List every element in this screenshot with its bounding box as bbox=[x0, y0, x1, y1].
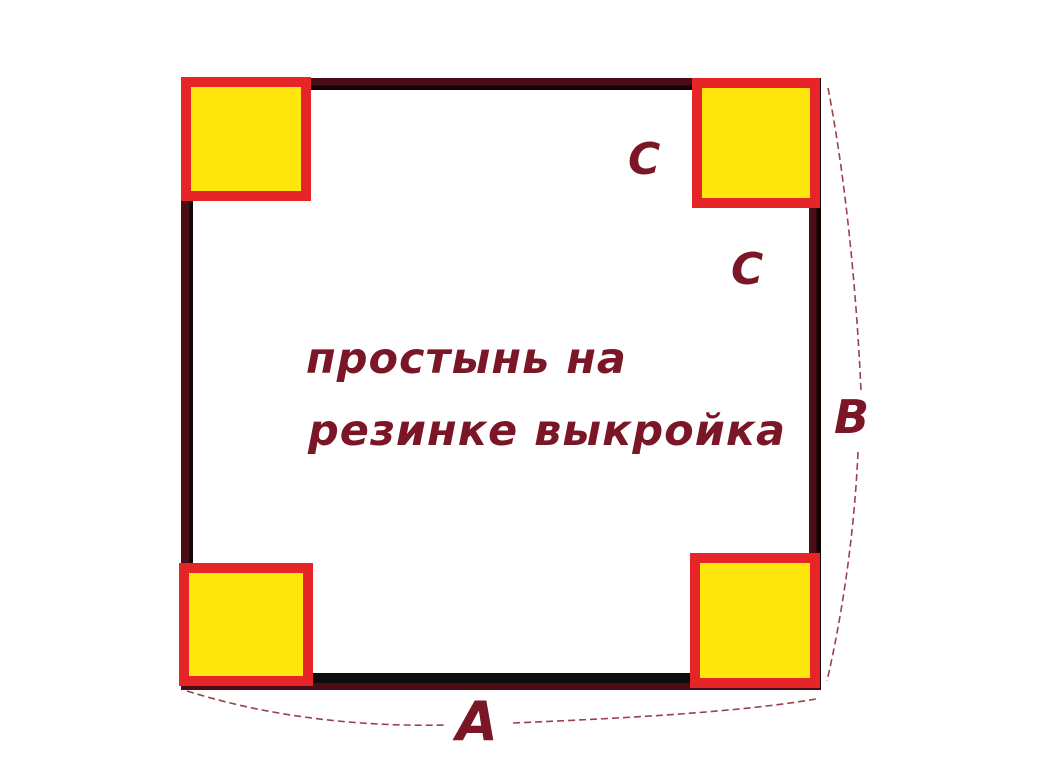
pattern-caption-line1: простынь на bbox=[306, 334, 627, 384]
dimension-label-c-lower: C bbox=[731, 244, 764, 295]
dimension-curves bbox=[0, 0, 1057, 768]
corner-square-top-right bbox=[692, 78, 820, 208]
pattern-caption-line2: резинке выкройка bbox=[308, 406, 786, 456]
corner-square-bottom-right bbox=[690, 553, 820, 688]
dimension-label-b: B bbox=[834, 390, 870, 444]
corner-square-top-left bbox=[181, 77, 311, 201]
dimension-curve-a-left-segment bbox=[187, 691, 447, 725]
dimension-label-c-upper: C bbox=[628, 134, 661, 185]
dimension-label-a: A bbox=[456, 690, 499, 753]
corner-square-bottom-left bbox=[179, 563, 313, 686]
dimension-curve-b-upper-segment bbox=[828, 88, 861, 391]
dimension-curve-a-right-segment bbox=[513, 699, 816, 723]
dimension-curve-b-lower-segment bbox=[827, 452, 858, 681]
sheet-pattern-diagram: простынь на резинке выкройка C C B A bbox=[0, 0, 1057, 768]
